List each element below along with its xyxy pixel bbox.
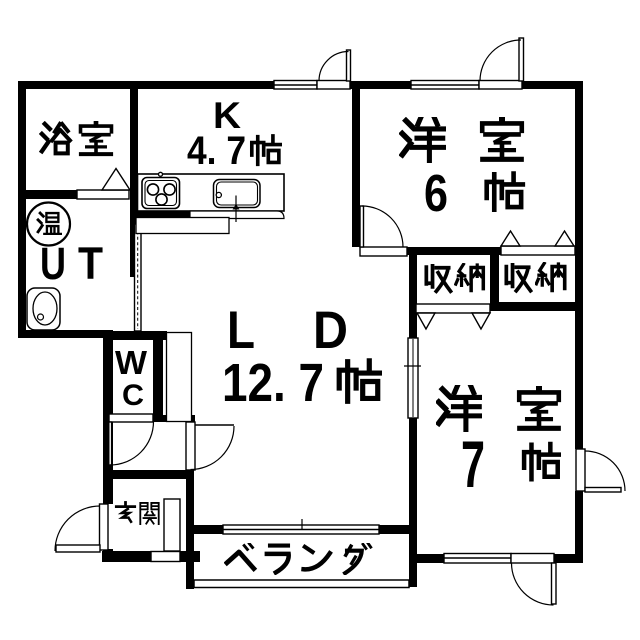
svg-text:L: L — [227, 301, 255, 360]
svg-text:C: C — [122, 379, 144, 412]
svg-text:D: D — [313, 301, 348, 360]
svg-text:4. 7: 4. 7 — [187, 129, 246, 173]
svg-text:U: U — [40, 238, 66, 289]
svg-text:6: 6 — [424, 165, 448, 223]
svg-text:T: T — [78, 238, 103, 289]
svg-text:W: W — [115, 344, 148, 381]
svg-text:7: 7 — [461, 427, 485, 501]
svg-text:12. 7: 12. 7 — [222, 353, 324, 413]
